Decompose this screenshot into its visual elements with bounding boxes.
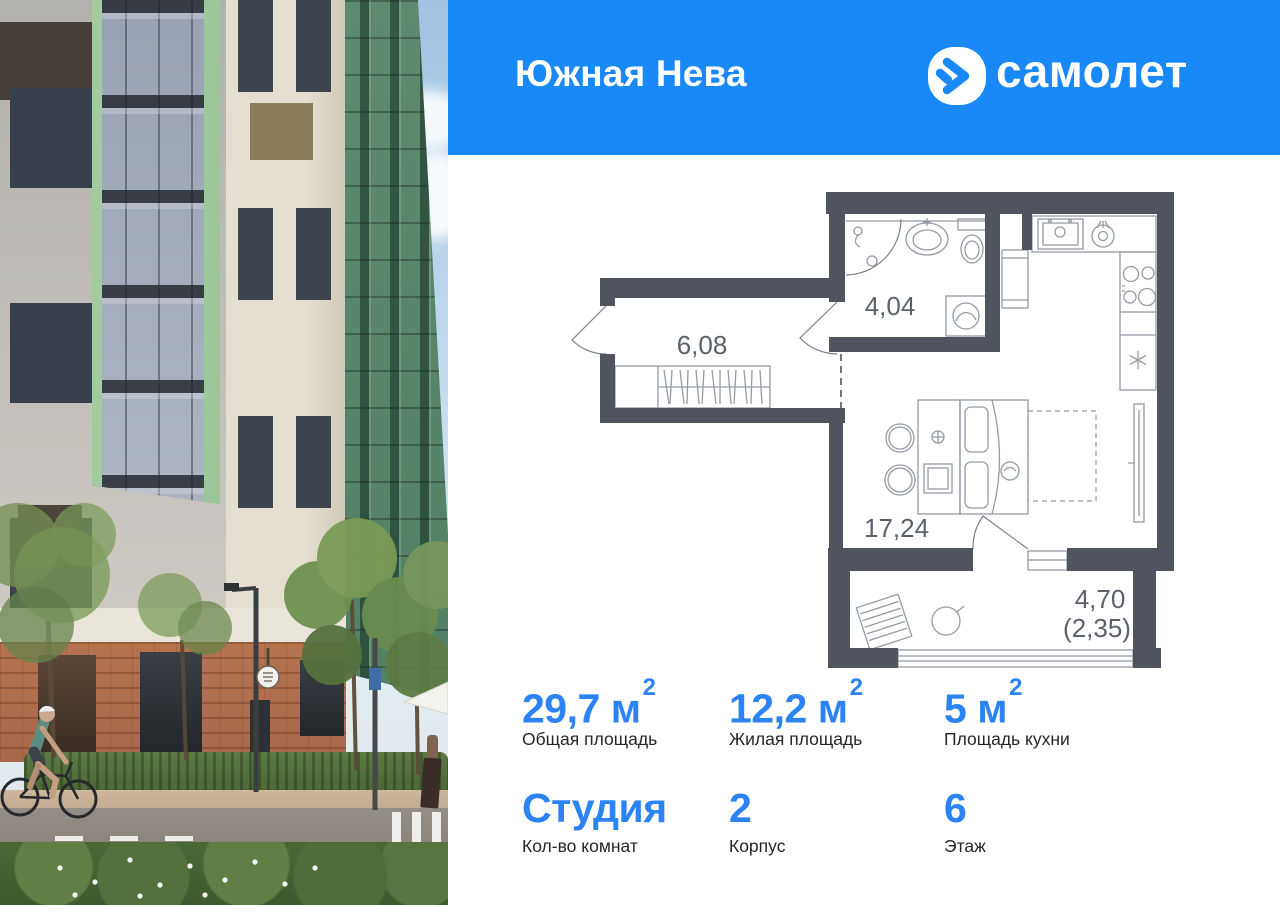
photo-props [0, 0, 448, 905]
stat-total-area: 29,7 м2 [522, 680, 655, 730]
room-label-living-room: 17,24 [864, 513, 929, 543]
stat-total-area-label: Общая площадь [522, 731, 657, 748]
listing-card[interactable]: { "card": { "header": { "title": "Южная … [0, 0, 1280, 905]
samolet-logo-icon [928, 47, 986, 105]
room-label-balcony-secondary: (2,35) [1063, 613, 1131, 643]
stat-floor-label: Этаж [944, 838, 986, 855]
tree-row [284, 518, 448, 775]
brand-logo: самолет [928, 47, 1218, 105]
balcony-furniture [856, 594, 964, 649]
stat-rooms: Студия [522, 788, 667, 829]
balcony-door [973, 516, 1028, 549]
cafe-terrace [404, 682, 448, 809]
cyclist [2, 706, 96, 817]
entrance-door [572, 306, 606, 354]
stat-living-area-label: Жилая площадь [729, 731, 862, 748]
stat-building: 2 [729, 788, 751, 829]
vent-shaft [1002, 250, 1028, 308]
brand-name: самолет [996, 42, 1188, 100]
card-header: Южная Нева самолет [448, 0, 1280, 155]
project-title: Южная Нева [515, 50, 747, 98]
fridge-snowflake [1130, 351, 1146, 369]
floor-plan: 6,08 4,04 17,24 4,70 (2,35) [555, 185, 1185, 675]
arrow-icon [928, 47, 986, 105]
balcony-glazing [898, 650, 1133, 667]
sign-pole [369, 638, 381, 810]
stat-kitchen-area-label: Площадь кухни [944, 731, 1070, 748]
street-lamp [224, 583, 256, 792]
hallway-wardrobe [615, 366, 770, 408]
building-photo [0, 0, 448, 905]
flowers [57, 857, 317, 898]
tree [0, 503, 116, 758]
cafe-sign [257, 648, 279, 688]
room-label-balcony: 4,70 [1075, 584, 1126, 614]
room-label-hallway: 6,08 [677, 330, 728, 360]
stat-kitchen-area: 5 м2 [944, 680, 1022, 730]
stat-rooms-label: Кол-во комнат [522, 838, 638, 855]
stat-floor: 6 [944, 788, 966, 829]
room-label-bathroom: 4,04 [865, 291, 916, 321]
tree [138, 573, 232, 760]
stat-building-label: Корпус [729, 838, 785, 855]
stat-living-area: 12,2 м2 [729, 680, 862, 730]
living-room-furniture [885, 400, 1144, 522]
kitchen-fixtures [1032, 216, 1156, 390]
